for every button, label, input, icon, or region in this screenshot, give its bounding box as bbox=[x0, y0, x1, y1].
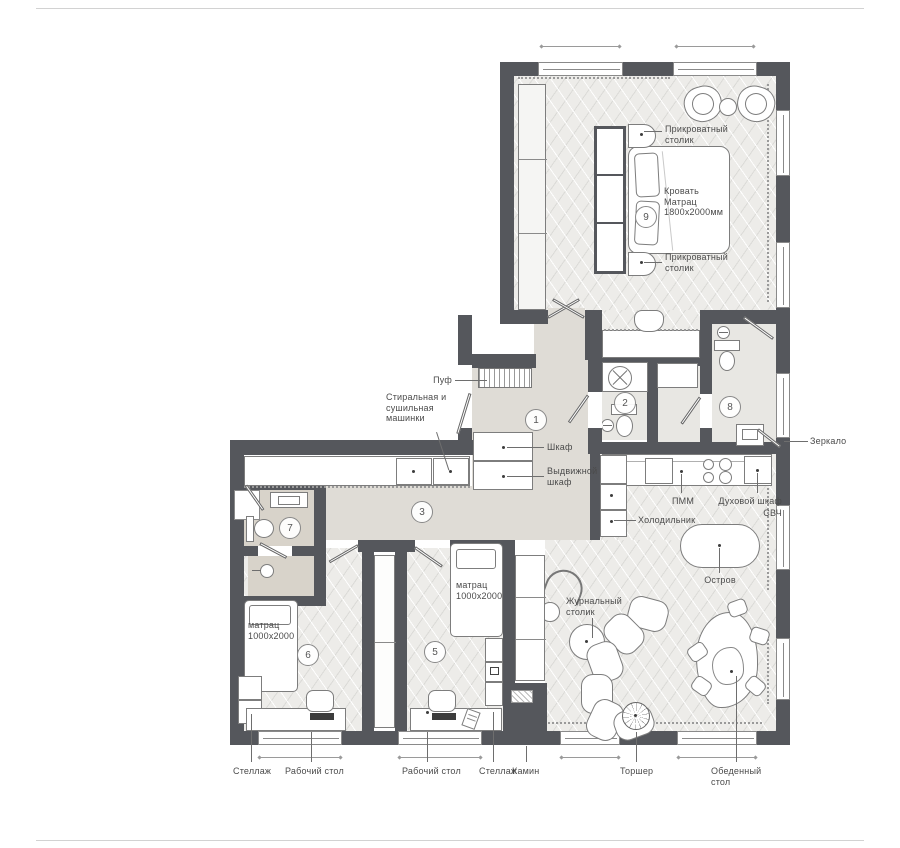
curtain-living-bottom bbox=[548, 722, 762, 725]
shelf-left-label: Стеллаж bbox=[233, 766, 271, 777]
leader-dot bbox=[730, 670, 733, 673]
leader-dot bbox=[310, 713, 313, 716]
toilet-tank bbox=[714, 340, 740, 351]
vanity-desk bbox=[602, 330, 700, 358]
floor-lamp-label: Торшер bbox=[620, 766, 653, 777]
leader-dot bbox=[718, 544, 721, 547]
fireplace-label: Камин bbox=[512, 766, 539, 777]
room-number-9: 9 bbox=[635, 206, 657, 228]
leader-line bbox=[526, 746, 527, 762]
wall-bath-small-right bbox=[314, 478, 326, 606]
toilet-bowl bbox=[254, 519, 274, 538]
bedroom-wardrobe bbox=[518, 84, 546, 310]
dining-table-label: Обеденный стол bbox=[711, 766, 761, 787]
toilet-tank bbox=[246, 516, 254, 542]
wall-pier-left bbox=[585, 310, 602, 360]
sink-line bbox=[603, 425, 612, 426]
shelf-unit-right bbox=[485, 662, 503, 682]
leader-dot bbox=[756, 469, 759, 472]
door-gap bbox=[700, 394, 712, 428]
leader-line bbox=[493, 712, 494, 762]
mattress-right-label: матрац 1000х2000 bbox=[456, 580, 502, 601]
leader-dot bbox=[502, 475, 505, 478]
leader-dot bbox=[426, 711, 429, 714]
leader-dot bbox=[640, 133, 643, 136]
window-bottom-2 bbox=[398, 731, 482, 745]
pillow bbox=[456, 549, 496, 569]
wall-hall-left bbox=[458, 315, 472, 365]
dimension-line bbox=[560, 757, 620, 758]
dimension-line bbox=[258, 757, 342, 758]
leader-line bbox=[427, 732, 428, 762]
room-number-6: 6 bbox=[297, 644, 319, 666]
mattress-left-label: матрац 1000х2000 bbox=[248, 620, 294, 641]
pouf-label: Пуф bbox=[424, 375, 452, 386]
leader-dot bbox=[502, 446, 505, 449]
wall-kids-divider-left bbox=[362, 552, 374, 731]
sheet-frame-top bbox=[36, 8, 864, 9]
leader-line bbox=[614, 520, 636, 521]
desk-right bbox=[410, 708, 502, 731]
dimension-line bbox=[677, 757, 757, 758]
window-right-1 bbox=[776, 110, 790, 176]
nightstand-bottom bbox=[628, 252, 656, 276]
void-notch bbox=[472, 324, 534, 354]
leader-dot bbox=[610, 520, 613, 523]
window-bottom-4 bbox=[677, 731, 757, 745]
wardrobe-label: Шкаф bbox=[547, 442, 573, 453]
laundry-label: Стиральная и сушильная машинки bbox=[386, 392, 446, 424]
oven-label: Духовой шкаф bbox=[718, 496, 782, 507]
kitchen-tall-cabinet bbox=[600, 455, 627, 484]
leader-line bbox=[784, 441, 808, 442]
window-top-1 bbox=[538, 62, 623, 76]
monitor bbox=[432, 713, 456, 720]
leader-line bbox=[644, 131, 662, 132]
nightstand-top bbox=[628, 124, 656, 148]
leader-dot bbox=[634, 714, 637, 717]
room-number-2: 2 bbox=[614, 392, 636, 414]
fridge-label: Холодильник bbox=[638, 515, 695, 526]
room-number-1: 1 bbox=[525, 409, 547, 431]
leader-line bbox=[592, 618, 593, 638]
leader-line bbox=[507, 476, 544, 477]
mirror-label: Зеркало bbox=[810, 436, 846, 447]
window-bottom-1 bbox=[258, 731, 342, 745]
leader-dot bbox=[412, 470, 415, 473]
wall-living-left bbox=[503, 540, 515, 685]
hob-burner bbox=[719, 458, 732, 471]
curtain-laundry-row bbox=[244, 486, 470, 489]
vanity-chair bbox=[634, 310, 664, 332]
shower-head bbox=[260, 564, 274, 578]
leader-dot bbox=[449, 470, 452, 473]
pouf bbox=[478, 368, 532, 388]
fridge-upper bbox=[600, 484, 627, 510]
leader-line bbox=[736, 676, 737, 762]
toilet-bowl bbox=[616, 415, 633, 437]
headboard-shelf bbox=[594, 126, 626, 274]
wall-hall-jog bbox=[472, 354, 536, 368]
desk-right-label: Рабочий стол bbox=[402, 766, 461, 777]
coffee-table-label: Журнальный столик bbox=[566, 596, 622, 617]
window-right-3 bbox=[776, 373, 790, 438]
leader-line bbox=[644, 262, 662, 263]
nightstand-top-label: Прикроватный столик bbox=[665, 124, 728, 145]
shower-floor bbox=[248, 556, 314, 596]
leader-line bbox=[455, 380, 487, 381]
fridge-lower bbox=[600, 510, 627, 537]
dimension-line bbox=[398, 757, 482, 758]
dishwasher bbox=[645, 458, 673, 484]
leader-dot bbox=[640, 261, 643, 264]
desk-chair bbox=[428, 690, 456, 712]
room-number-7: 7 bbox=[279, 517, 301, 539]
leader-line bbox=[311, 732, 312, 762]
curtain-bedroom-top bbox=[518, 77, 670, 80]
wall-bedroom-bottom-left bbox=[500, 310, 548, 324]
bath-small-sink bbox=[270, 492, 308, 508]
leader-dot bbox=[610, 494, 613, 497]
living-shelf bbox=[515, 555, 545, 681]
shelf-unit-left bbox=[238, 676, 262, 700]
pullout-wardrobe-label: Выдвижной шкаф bbox=[547, 466, 597, 487]
pillow bbox=[634, 152, 660, 197]
shower-arm bbox=[252, 570, 261, 571]
dishwasher-label: ПММ bbox=[666, 496, 700, 507]
kids-closet bbox=[374, 555, 395, 728]
toilet-bowl bbox=[719, 351, 735, 371]
side-table bbox=[719, 98, 737, 116]
desk-left-label: Рабочий стол bbox=[285, 766, 344, 777]
vestibule-closet bbox=[657, 363, 698, 388]
microwave-label: СВЧ bbox=[756, 508, 782, 519]
nightstand-bottom-label: Прикроватный столик bbox=[665, 252, 728, 273]
leader-line bbox=[681, 474, 682, 493]
floor-plan: Прикроватный столик Прикроватный столик … bbox=[0, 0, 900, 848]
monitor bbox=[310, 713, 334, 720]
shelf-unit-right bbox=[485, 638, 503, 662]
leader-dot bbox=[585, 640, 588, 643]
leader-line bbox=[636, 732, 637, 762]
shelf-unit-right bbox=[485, 682, 503, 706]
sink-line bbox=[719, 332, 728, 333]
hob-burner bbox=[703, 472, 714, 483]
wall-corridor-bottom-b bbox=[358, 540, 415, 552]
window-right-2 bbox=[776, 242, 790, 308]
window-top-2 bbox=[673, 62, 757, 76]
island-label: Остров bbox=[698, 575, 742, 586]
hob-burner bbox=[703, 459, 714, 470]
window-right-5 bbox=[776, 638, 790, 700]
dimension-line bbox=[675, 46, 755, 47]
dimension-line bbox=[540, 46, 621, 47]
room-number-5: 5 bbox=[424, 641, 446, 663]
leader-line bbox=[251, 714, 252, 762]
leader-line bbox=[719, 548, 720, 573]
leader-line bbox=[507, 447, 544, 448]
desk-chair bbox=[306, 690, 334, 712]
room-number-3: 3 bbox=[411, 501, 433, 523]
room-number-8: 8 bbox=[719, 396, 741, 418]
wall-bedroom-left bbox=[500, 76, 514, 322]
leader-dot bbox=[680, 470, 683, 473]
sheet-frame-bottom bbox=[36, 840, 864, 841]
bed-label: Кровать Матрац 1800х2000мм bbox=[664, 186, 723, 218]
hob-burner bbox=[719, 471, 732, 484]
wall-kids-divider-right bbox=[395, 552, 407, 731]
leader-line bbox=[757, 473, 758, 493]
fireplace-firebox bbox=[511, 690, 533, 703]
curtain-living-right-2 bbox=[767, 636, 770, 704]
door-gap bbox=[588, 392, 602, 428]
bath-sink bbox=[736, 424, 764, 446]
